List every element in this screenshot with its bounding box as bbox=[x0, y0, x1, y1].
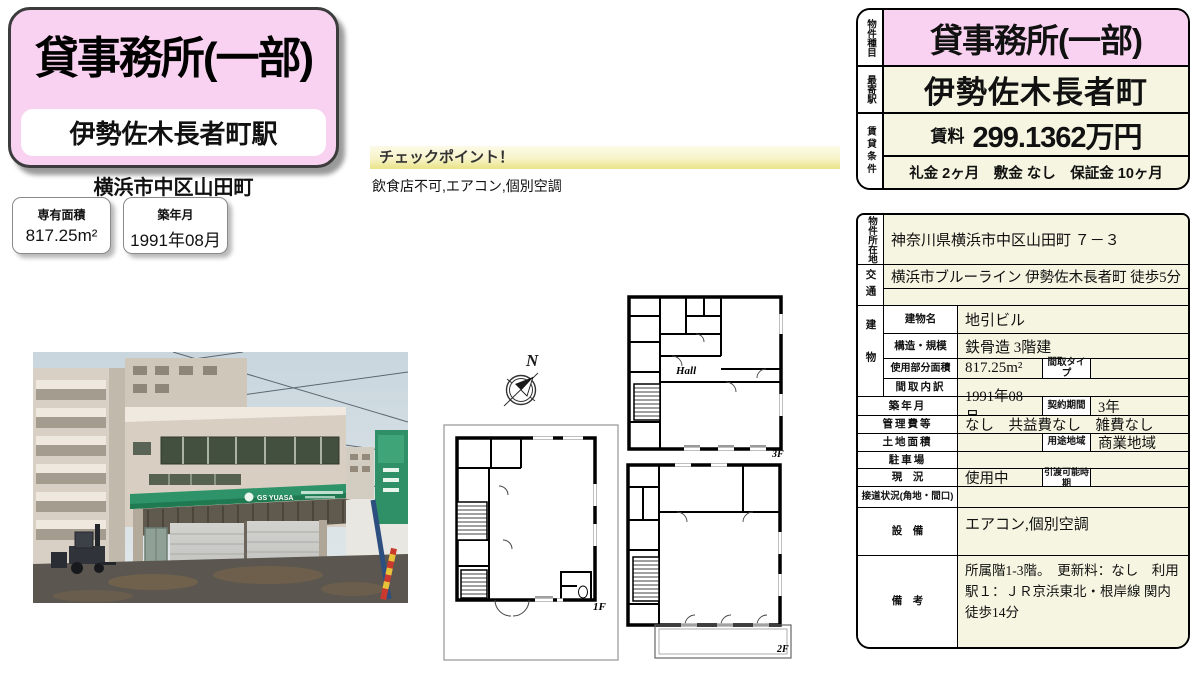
north-label: N bbox=[525, 351, 539, 370]
parking-value bbox=[958, 452, 1188, 468]
structure-label: 構造・規模 bbox=[884, 334, 958, 358]
notes-label: 備 考 bbox=[858, 556, 958, 647]
madori-type-value bbox=[1091, 359, 1188, 378]
summary-station-label: 最寄駅 bbox=[858, 67, 884, 112]
contract-label: 契約期間 bbox=[1043, 397, 1091, 415]
area-badge-value: 817.25m² bbox=[13, 226, 110, 246]
checkpoint-bar: チェックポイント！ bbox=[370, 146, 840, 169]
built-value: 1991年08月 bbox=[958, 397, 1043, 415]
area-badge: 専有面積 817.25m² bbox=[12, 197, 111, 254]
built-badge: 築年月 1991年08月 bbox=[123, 197, 228, 254]
used-area-label: 使用部分面積 bbox=[884, 359, 958, 378]
location-value: 神奈川県横浜市中区山田町 ７－３ bbox=[884, 215, 1188, 264]
road-value bbox=[958, 487, 1188, 507]
summary-station-value: 伊勢佐木長者町 bbox=[884, 67, 1188, 112]
building-label: 建物 bbox=[858, 306, 884, 396]
rent-label: 賃料 bbox=[931, 122, 965, 147]
floor-label-3f: 3F bbox=[771, 449, 784, 460]
land-value bbox=[958, 434, 1043, 451]
contract-value: 3年 bbox=[1091, 397, 1188, 415]
building-photo: GS YUASA bbox=[33, 352, 408, 603]
status-label: 現 況 bbox=[858, 469, 958, 486]
equipment-value: エアコン,個別空調 bbox=[958, 508, 1188, 555]
summary-table: 物件種目 貸事務所(一部) 最寄駅 伊勢佐木長者町 賃貸条件 賃料 299.13… bbox=[856, 8, 1190, 190]
access-label: 交通 bbox=[858, 265, 884, 305]
road-label: 接道状況(角地・間口) bbox=[858, 487, 958, 507]
checkpoint-items: 飲食店不可,エアコン,個別空調 bbox=[372, 176, 562, 196]
madori-type-label: 間取タイプ bbox=[1043, 359, 1091, 378]
address-short: 横浜市中区山田町 bbox=[8, 171, 339, 200]
building-name-value: 地引ビル bbox=[958, 306, 1188, 333]
floor-label-1f: 1F bbox=[593, 601, 607, 613]
fees-label: 管理費等 bbox=[858, 416, 958, 433]
building-name-label: 建物名 bbox=[884, 306, 958, 333]
rent-value: 299.1362万円 bbox=[973, 114, 1142, 156]
detail-table: 物件所在地 神奈川県横浜市中区山田町 ７－３ 交通 横浜市ブルーライン 伊勢佐木… bbox=[856, 213, 1190, 649]
structure-value: 鉄骨造 3階建 bbox=[958, 334, 1188, 358]
fees-value: なし 共益費なし 雑費なし bbox=[958, 416, 1188, 433]
zoning-label: 用途地域 bbox=[1043, 434, 1091, 451]
summary-type-label: 物件種目 bbox=[858, 10, 884, 65]
station-name: 伊勢佐木長者町駅 bbox=[69, 114, 277, 151]
flyer-page: 貸事務所(一部) 伊勢佐木長者町駅 横浜市中区山田町 専有面積 817.25m²… bbox=[0, 0, 1200, 697]
status-value: 使用中 bbox=[958, 469, 1043, 486]
hall-label: Hall bbox=[675, 365, 697, 377]
canopy-sign-text: GS YUASA bbox=[257, 495, 293, 502]
property-type-title: 貸事務所(一部) bbox=[11, 22, 336, 86]
land-label: 土地面積 bbox=[858, 434, 958, 451]
built-label: 築年月 bbox=[858, 397, 958, 415]
handover-label: 引渡可能時期 bbox=[1043, 469, 1091, 486]
terms-value: 礼金 2ヶ月 敷金 なし 保証金 10ヶ月 bbox=[909, 162, 1163, 183]
equipment-label: 設 備 bbox=[858, 508, 958, 555]
summary-type-value: 貸事務所(一部) bbox=[884, 10, 1188, 65]
used-area-value: 817.25m² bbox=[958, 359, 1043, 378]
access-value: 横浜市ブルーライン 伊勢佐木長者町 徒歩5分 bbox=[884, 265, 1188, 288]
compass: N bbox=[500, 350, 550, 412]
built-badge-label: 築年月 bbox=[124, 206, 227, 223]
location-label: 物件所在地 bbox=[858, 215, 884, 264]
madori-detail-label: 間取内訳 bbox=[884, 379, 958, 396]
zoning-value: 商業地域 bbox=[1091, 434, 1188, 451]
floorplan-2f: 2F bbox=[625, 462, 795, 662]
floorplan-3f: Hall 3F bbox=[626, 294, 790, 460]
area-badge-label: 専有面積 bbox=[13, 206, 110, 223]
access-value-line2 bbox=[884, 289, 1188, 305]
built-badge-value: 1991年08月 bbox=[124, 226, 227, 251]
floorplan-1f: 1F bbox=[443, 424, 619, 662]
floor-label-2f: 2F bbox=[776, 644, 789, 655]
notes-value: 所属階1-3階。 更新料：なし 利用駅１：ＪＲ京浜東北・根岸線 関内 徒歩14分 bbox=[958, 556, 1188, 647]
property-type-box: 貸事務所(一部) 伊勢佐木長者町駅 bbox=[8, 7, 339, 168]
station-name-box: 伊勢佐木長者町駅 bbox=[21, 109, 326, 156]
handover-value bbox=[1091, 469, 1188, 486]
summary-cond-label: 賃貸条件 bbox=[858, 114, 884, 188]
parking-label: 駐車場 bbox=[858, 452, 958, 468]
